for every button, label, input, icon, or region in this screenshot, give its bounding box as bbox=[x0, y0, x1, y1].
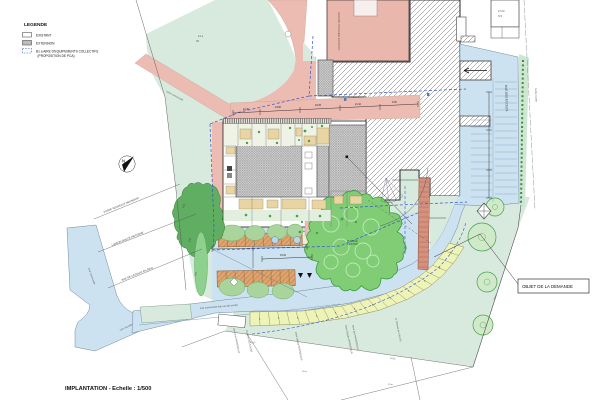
svg-text:(PROPOSITION DE PCA): (PROPOSITION DE PCA) bbox=[38, 54, 75, 58]
svg-text:EXISTANT: EXISTANT bbox=[347, 243, 359, 246]
svg-text:21.10: 21.10 bbox=[355, 103, 362, 106]
svg-text:9.35: 9.35 bbox=[392, 101, 397, 104]
svg-text:12 a: 12 a bbox=[198, 34, 204, 38]
svg-text:IMPLANTATION - Echelle : 1/500: IMPLANTATION - Echelle : 1/500 bbox=[65, 386, 151, 392]
svg-text:18 m: 18 m bbox=[302, 371, 307, 373]
svg-text:OBJET DE LA DEMANDE: OBJET DE LA DEMANDE bbox=[522, 284, 573, 289]
svg-text:23.80: 23.80 bbox=[275, 106, 282, 109]
svg-text:15.00: 15.00 bbox=[280, 254, 287, 257]
svg-text:LT 03: LT 03 bbox=[498, 9, 505, 13]
svg-text:18.25: 18.25 bbox=[315, 104, 322, 107]
svg-text:EXISTANT: EXISTANT bbox=[36, 34, 51, 38]
svg-text:Sente rurale: Sente rurale bbox=[534, 88, 539, 103]
svg-text:N 5: N 5 bbox=[498, 14, 503, 18]
svg-text:12.40: 12.40 bbox=[243, 108, 250, 111]
svg-text:GROUPE SCOLAIRE EXISTANT: GROUPE SCOLAIRE EXISTANT bbox=[337, 12, 341, 51]
svg-text:22 m: 22 m bbox=[388, 384, 393, 386]
svg-text:LEGENDE: LEGENDE bbox=[24, 22, 48, 28]
svg-text:EXTENSION: EXTENSION bbox=[36, 42, 55, 46]
